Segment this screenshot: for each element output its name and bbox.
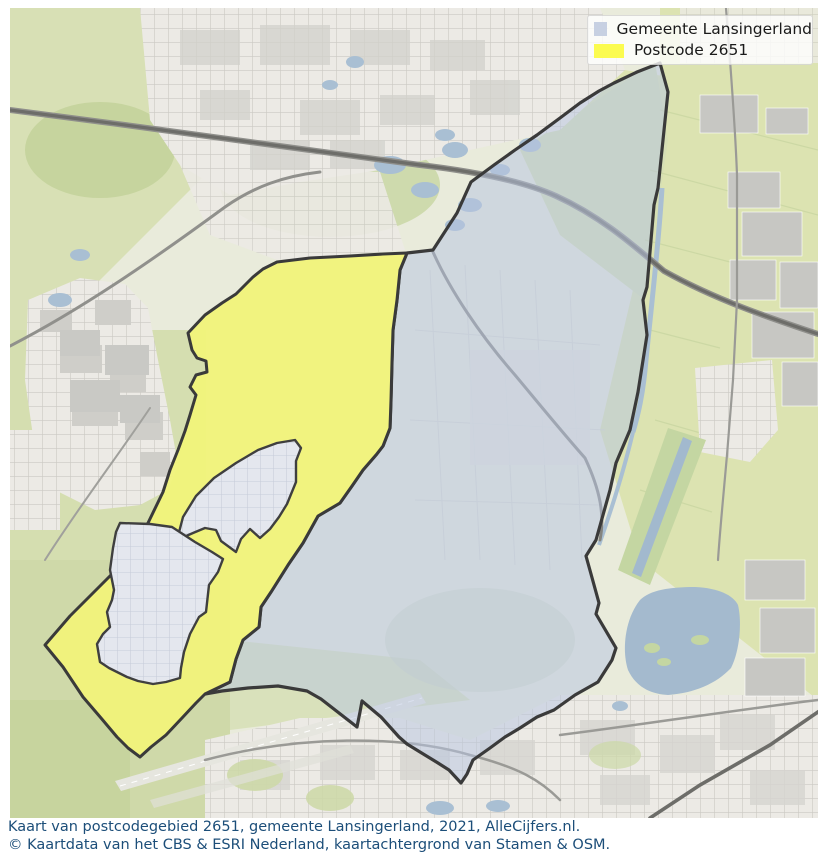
map-canvas xyxy=(10,8,818,818)
legend-label-postcode: Postcode 2651 xyxy=(634,42,748,59)
legend-item-postcode: Postcode 2651 xyxy=(588,42,812,59)
legend-swatch-gemeente-icon xyxy=(594,22,607,36)
caption-line-1: Kaart van postcodegebied 2651, gemeente … xyxy=(8,819,610,837)
page: Gemeente Lansingerland Postcode 2651 Kaa… xyxy=(0,0,828,861)
legend: Gemeente Lansingerland Postcode 2651 xyxy=(587,15,813,65)
legend-item-gemeente: Gemeente Lansingerland xyxy=(588,21,812,38)
map: Gemeente Lansingerland Postcode 2651 xyxy=(10,8,818,818)
map-caption: Kaart van postcodegebied 2651, gemeente … xyxy=(8,819,610,854)
caption-line-2: © Kaartdata van het CBS & ESRI Nederland… xyxy=(8,837,610,855)
legend-label-gemeente: Gemeente Lansingerland xyxy=(617,21,812,38)
legend-swatch-postcode-icon xyxy=(594,44,624,58)
